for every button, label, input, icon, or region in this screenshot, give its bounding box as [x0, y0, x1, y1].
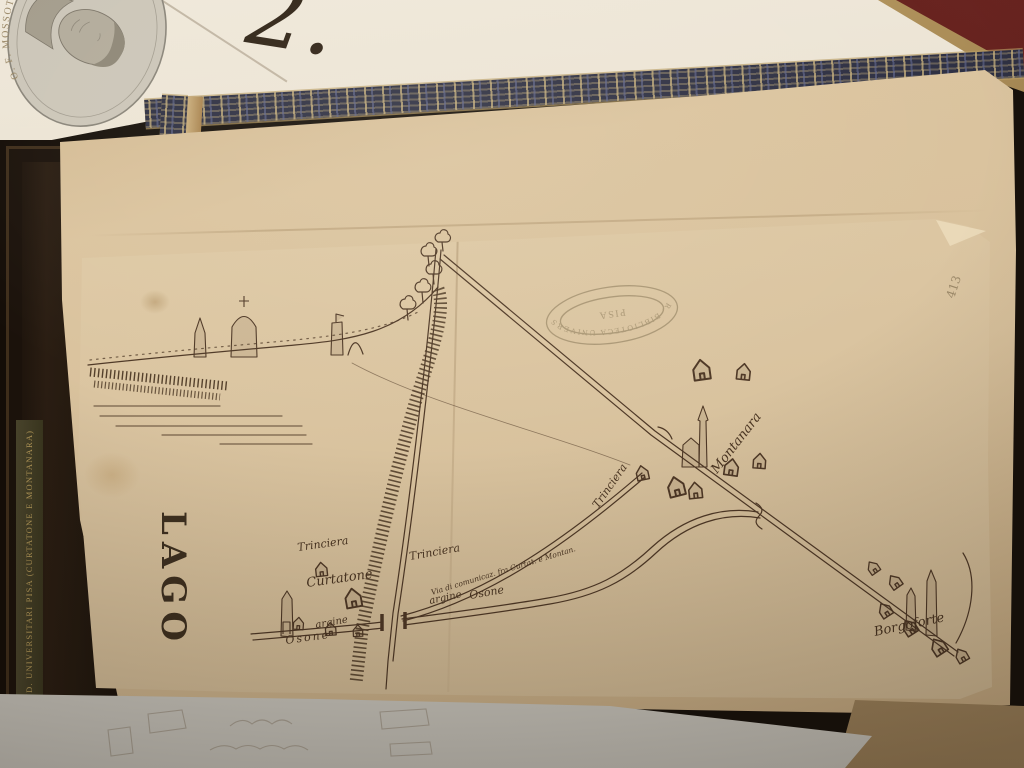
- tower-spire: [194, 318, 206, 357]
- lago-label: LAGO: [153, 511, 193, 648]
- photo-canvas: O. F. MOSSOTTI 2. COCCARDA STUD. UNIVERS…: [0, 0, 1024, 768]
- osone-east-label: Osone: [468, 583, 505, 602]
- tower: [331, 314, 344, 355]
- map-drawing: LAGO Trinciera Trinciera Trinciera Curta…: [70, 215, 1000, 715]
- osone-bridge: [382, 612, 405, 631]
- trinciera-left-label: Trinciera: [297, 534, 350, 554]
- church-dome: [231, 296, 257, 357]
- svg-text:R. BIBLIOTECA UNIVERSITARIA: R. BIBLIOTECA UNIVERSITARIA: [548, 233, 1000, 430]
- trinciera-montanara-label: Trinciera: [590, 461, 630, 510]
- library-stamp: R. BIBLIOTECA UNIVERSITARIA PISA: [543, 215, 1000, 430]
- borgoforte-buildings: [865, 553, 972, 664]
- road-to-lake: [386, 249, 441, 689]
- mantova-skyline: [88, 287, 438, 365]
- stamp-arc-text: R. BIBLIOTECA UNIVERSITARIA: [548, 233, 1000, 430]
- trinciera-mid-label: Trinciera: [408, 541, 461, 563]
- trees: [400, 230, 450, 320]
- page-number: 413: [944, 274, 964, 300]
- stamp-center-text: PISA: [597, 306, 626, 321]
- small-dome: [348, 343, 363, 355]
- sheet-numeral: 2.: [240, 0, 343, 77]
